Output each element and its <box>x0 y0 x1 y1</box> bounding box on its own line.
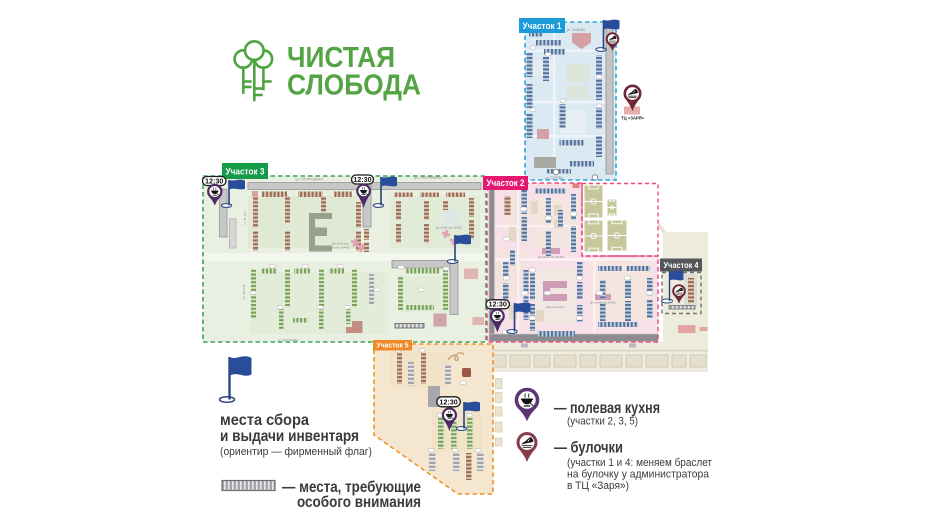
svg-text:(корпус №465): (корпус №465) <box>331 246 350 250</box>
svg-text:(участки 2, 3, 5): (участки 2, 3, 5) <box>567 416 638 428</box>
svg-text:места сбора: места сбора <box>220 412 309 429</box>
svg-text:(участки 1 и 4: меняем браслет: (участки 1 и 4: меняем браслет <box>567 457 712 469</box>
svg-text:(ориентир — фирменный флаг): (ориентир — фирменный флаг) <box>220 446 372 458</box>
svg-text:Детский сад №452: Детский сад №452 <box>436 226 462 230</box>
svg-text:ул. В. Уса: ул. В. Уса <box>243 211 247 225</box>
svg-text:Участок 1: Участок 1 <box>523 21 563 32</box>
svg-text:на булочку у администратора: на булочку у администратора <box>567 469 710 481</box>
svg-text:Участок 2: Участок 2 <box>487 178 525 188</box>
svg-text:ТЦ «ЗАРЯ»: ТЦ «ЗАРЯ» <box>621 116 644 121</box>
svg-text:ул. Бреста: ул. Бреста <box>242 284 246 299</box>
svg-text:ул. СПОРТИВНАЯ: ул. СПОРТИВНАЯ <box>295 178 323 182</box>
svg-text:в ТЦ «Заря»): в ТЦ «Заря») <box>567 480 629 492</box>
svg-text:Участок 4: Участок 4 <box>664 260 699 270</box>
svg-text:ул. ЗЫКОВА: ул. ЗЫКОВА <box>567 28 586 32</box>
svg-text:Детский сад №484: Детский сад №484 <box>538 255 564 259</box>
svg-text:— полевая кухня: — полевая кухня <box>554 400 660 417</box>
svg-text:12:30: 12:30 <box>489 300 507 309</box>
svg-text:Участок 3: Участок 3 <box>226 167 265 178</box>
svg-text:— булочки: — булочки <box>554 440 623 457</box>
svg-text:Участок 5: Участок 5 <box>377 343 409 350</box>
svg-text:Школа №213: Школа №213 <box>546 305 565 309</box>
svg-text:12:30: 12:30 <box>353 175 371 184</box>
svg-text:СЛОБОДА: СЛОБОДА <box>287 70 421 102</box>
svg-text:особого внимания: особого внимания <box>297 494 421 511</box>
svg-text:и выдачи инвентаря: и выдачи инвентаря <box>220 428 359 445</box>
svg-text:12:30: 12:30 <box>439 398 457 407</box>
